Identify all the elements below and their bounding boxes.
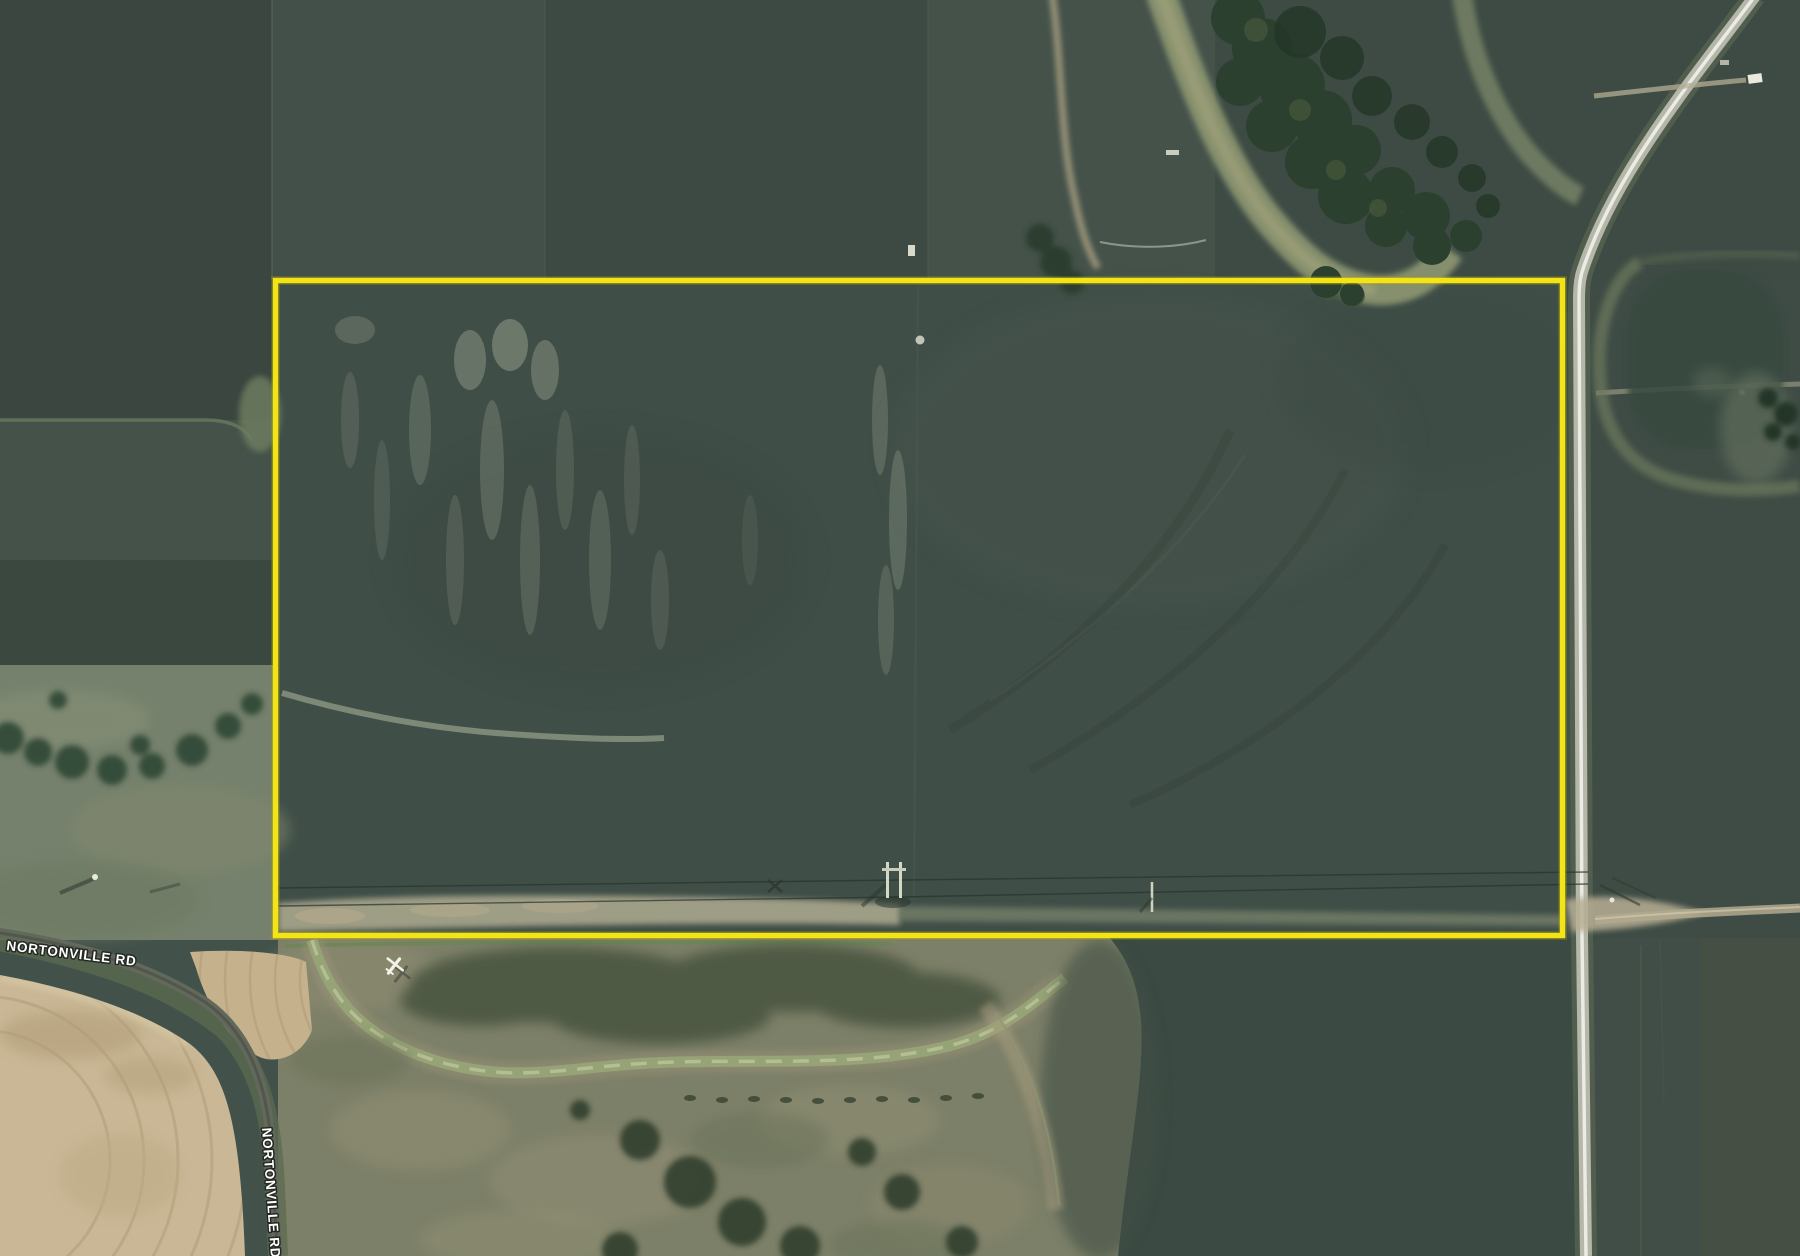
white-marker bbox=[1166, 150, 1179, 155]
south-pasture bbox=[260, 938, 1160, 1256]
satellite-map[interactable]: NORTONVILLE RD NORTONVILLE RD bbox=[0, 0, 1800, 1256]
white-marker bbox=[916, 336, 925, 345]
white-marker bbox=[908, 245, 915, 256]
aerial-imagery: NORTONVILLE RD NORTONVILLE RD bbox=[0, 0, 1800, 1256]
west-pasture bbox=[0, 665, 290, 940]
